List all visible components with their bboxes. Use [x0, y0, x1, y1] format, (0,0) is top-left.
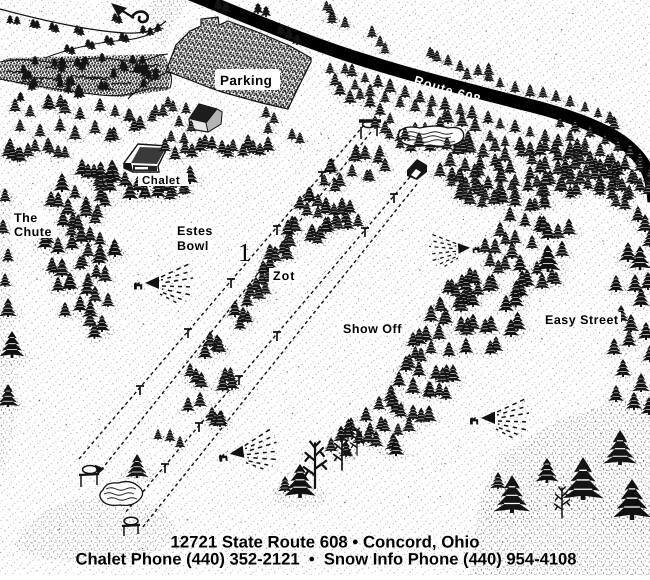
svg-text:Parking: Parking [220, 73, 272, 88]
svg-text:The: The [14, 211, 38, 225]
svg-text:Bowl: Bowl [177, 239, 209, 253]
svg-text:Easy Street: Easy Street [545, 313, 619, 327]
svg-text:1: 1 [238, 238, 251, 267]
svg-text:Chalet: Chalet [142, 175, 180, 187]
svg-text:Zot: Zot [273, 269, 295, 283]
svg-text:Chalet Phone (440) 352-2121 •: Chalet Phone (440) 352-2121 • Snow Info … [75, 550, 576, 569]
svg-text:Estes: Estes [177, 224, 213, 238]
svg-text:Show Off: Show Off [343, 322, 402, 336]
svg-text:Chute: Chute [14, 225, 52, 239]
